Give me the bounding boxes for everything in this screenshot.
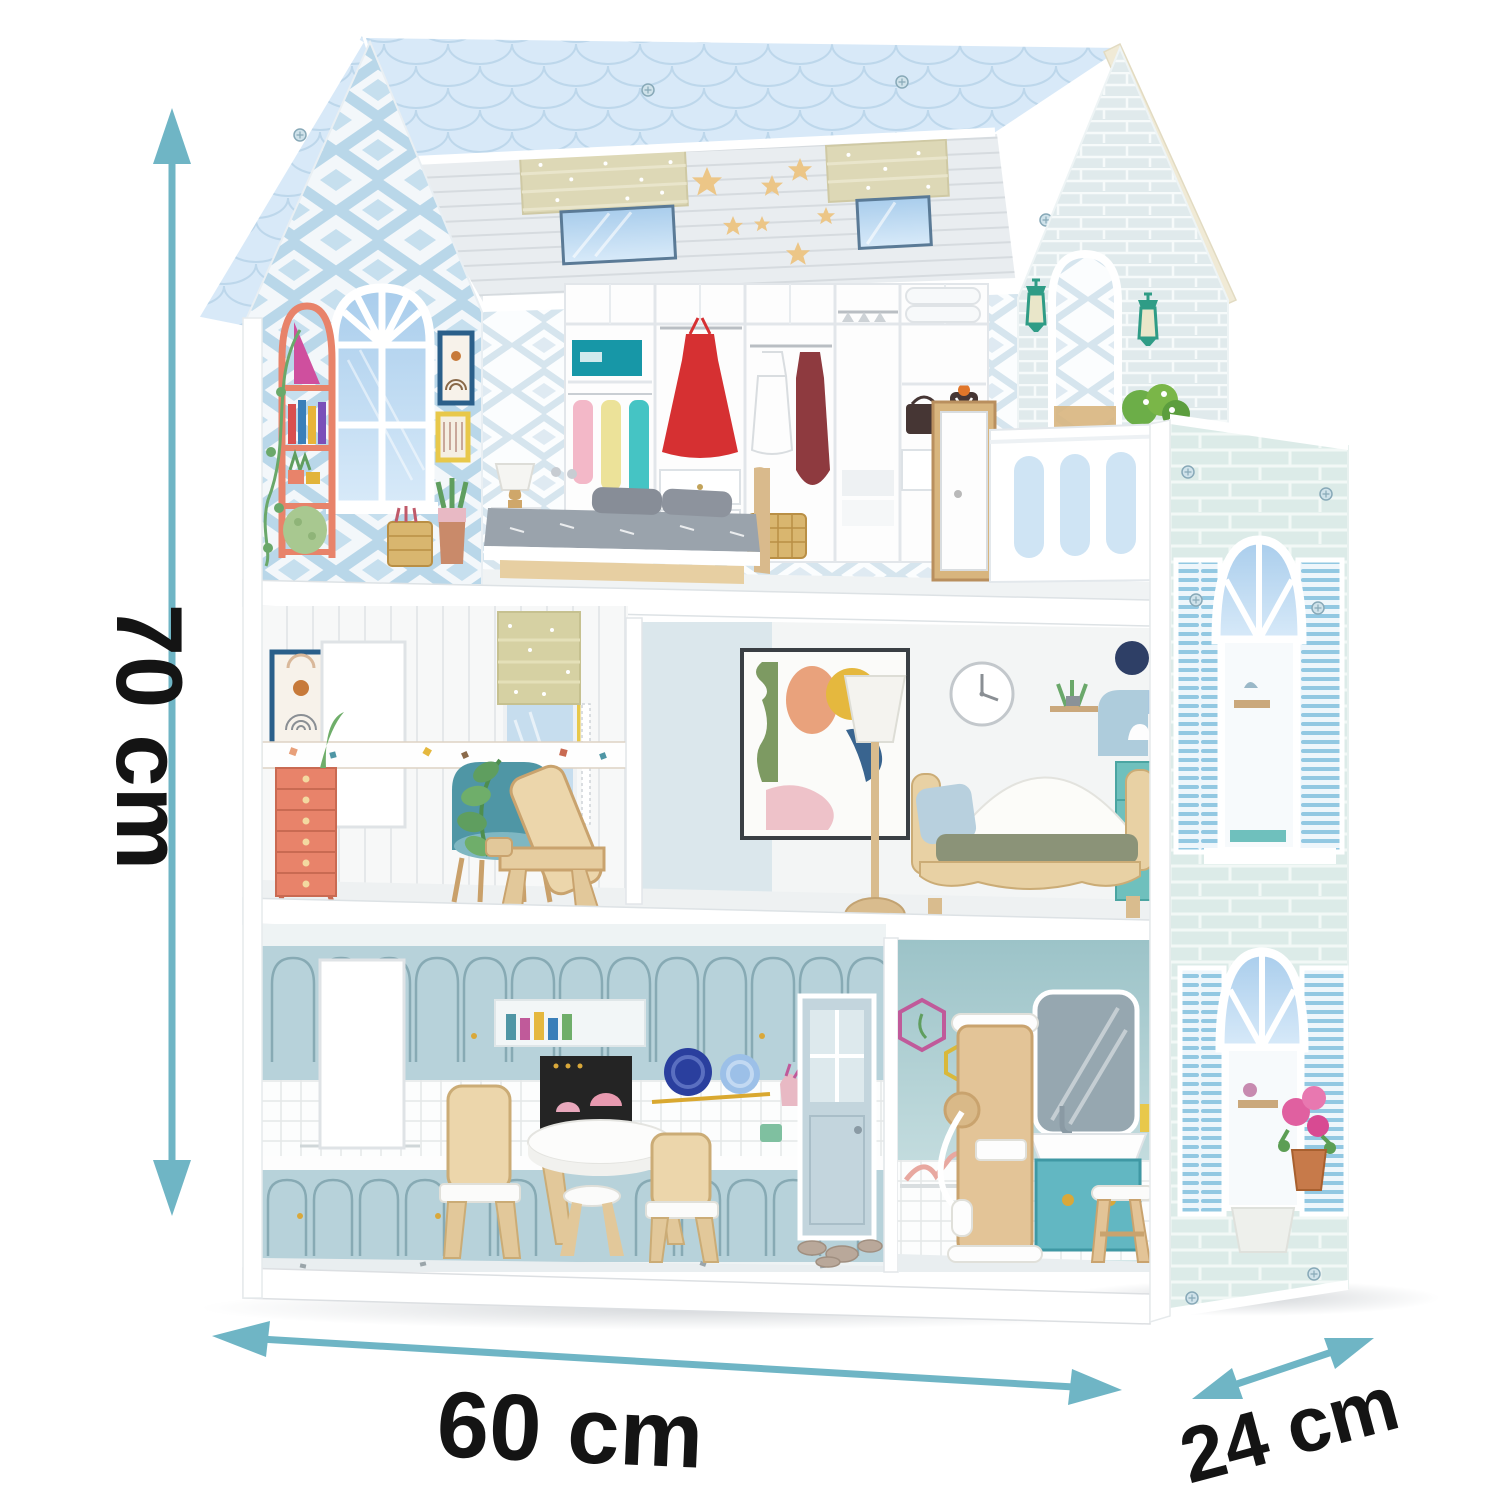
bathroom bbox=[898, 940, 1154, 1272]
wall-clock bbox=[951, 663, 1013, 725]
dollhouse-illustration: 70 cm 60 cm 24 cm bbox=[0, 0, 1500, 1500]
depth-dimension-label: 24 cm bbox=[1171, 1358, 1407, 1500]
front-corner-post bbox=[1150, 420, 1170, 1322]
height-dimension-label: 70 cm bbox=[97, 604, 202, 871]
gable-arched-window bbox=[326, 288, 438, 514]
bottom-floor bbox=[262, 924, 1154, 1272]
lantern bbox=[1026, 280, 1046, 332]
right-gable bbox=[1018, 48, 1228, 430]
hallway bbox=[798, 996, 882, 1267]
kitchen bbox=[262, 946, 890, 1272]
middle-floor bbox=[262, 606, 1160, 920]
wainscot-border bbox=[262, 742, 628, 768]
lantern bbox=[1138, 294, 1158, 346]
left-wall-edge bbox=[243, 318, 262, 1298]
gable-arch-opening bbox=[1052, 254, 1118, 430]
width-dimension-label: 60 cm bbox=[435, 1371, 706, 1488]
window-box bbox=[1232, 1208, 1294, 1252]
room-divider bbox=[626, 618, 642, 904]
hanging-clothes bbox=[573, 400, 649, 496]
balcony-railing bbox=[990, 424, 1168, 582]
painted-mirror bbox=[1035, 992, 1137, 1134]
gable-wall-art bbox=[438, 333, 472, 460]
side-wall bbox=[1170, 414, 1348, 1318]
side-window-lower bbox=[1180, 952, 1346, 1252]
pillow-stack bbox=[906, 288, 980, 322]
window-cutout bbox=[320, 960, 404, 1148]
room-divider bbox=[884, 938, 898, 1272]
balcony-cupboard bbox=[933, 402, 995, 580]
product-photo-dollhouse-dimensions: 70 cm 60 cm 24 cm bbox=[0, 0, 1500, 1500]
side-window-upper bbox=[1176, 540, 1342, 864]
